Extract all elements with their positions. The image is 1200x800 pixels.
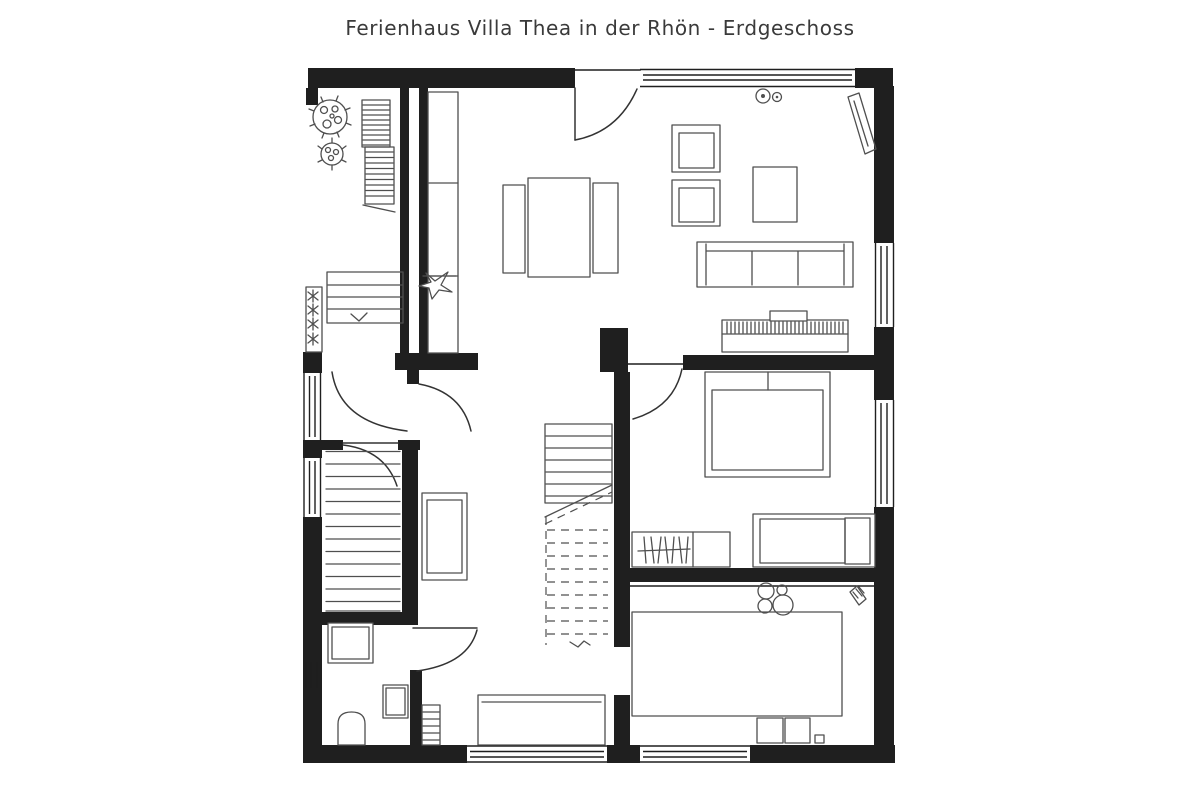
stool-1 — [757, 718, 783, 743]
window-left-stairroom — [304, 458, 321, 517]
wall-bathroom-east — [410, 670, 422, 745]
staircase-main — [545, 424, 612, 647]
window-bottom-kitchen — [640, 746, 750, 762]
stool-2 — [785, 718, 810, 743]
wall-pillar-piano — [600, 328, 628, 372]
single-bed — [753, 514, 875, 567]
hall-cupboard — [428, 92, 458, 353]
wall-top-right-corner — [855, 68, 893, 88]
kitchen-furniture — [632, 583, 866, 743]
sofa — [697, 242, 853, 287]
wall-right-upper — [874, 86, 894, 243]
bathroom-door — [413, 628, 477, 671]
window-bottom-hall — [467, 746, 607, 762]
dining-bench-right — [593, 183, 618, 273]
sink — [383, 685, 408, 718]
window-right-bedroom — [876, 400, 894, 507]
wall-bottom-right — [750, 745, 895, 763]
window-top-living — [640, 70, 855, 87]
plant-small-icon — [318, 138, 346, 170]
window-left-vestibule — [304, 373, 321, 440]
wall-bottom-mid — [607, 745, 640, 763]
wall-porch-inner — [419, 88, 428, 353]
vestibule-door-left — [332, 372, 407, 431]
cooktop — [758, 583, 793, 615]
tv-wall-mounted — [848, 93, 876, 154]
wall-stairroom-east — [402, 450, 418, 625]
wall-bedroom-top — [683, 355, 875, 370]
side-table — [753, 167, 797, 222]
wall-right-lower — [874, 507, 894, 763]
exterior-elements — [306, 96, 456, 352]
wall-kitchen-top — [628, 568, 877, 582]
bedroom-furniture — [632, 372, 875, 567]
entrance-door-top — [575, 88, 637, 140]
wall-left-pier1 — [303, 352, 322, 373]
hall-sideboard — [422, 493, 467, 580]
bedroom-door — [633, 369, 682, 419]
wall-stairroom-top-left — [322, 440, 343, 450]
wall-vestibule-top — [395, 353, 478, 370]
staircase-side — [326, 452, 400, 612]
flowerbed-hatch — [306, 287, 322, 352]
small-object — [815, 735, 824, 743]
wall-left-lower — [303, 517, 322, 763]
living-room-furniture — [419, 89, 876, 353]
dining-set — [503, 178, 618, 277]
ceiling-lamp-icon — [756, 89, 782, 103]
exterior-stairs — [362, 100, 395, 212]
wall-stairroom-top-right — [398, 440, 420, 450]
cutting-board — [850, 586, 866, 605]
wall-hall-east-lower — [614, 695, 630, 745]
floor-plan-svg — [0, 0, 1200, 800]
double-bed — [705, 372, 830, 477]
wardrobe — [632, 532, 730, 567]
window-right-living — [876, 243, 894, 327]
wall-topleft-stub — [306, 88, 318, 105]
radiator — [422, 705, 440, 745]
floor-plan-page: Ferienhaus Villa Thea in der Rhön - Erdg… — [0, 0, 1200, 800]
wall-porch-outer — [400, 88, 409, 353]
dining-bench-left — [503, 185, 525, 273]
wall-right-mid — [874, 327, 894, 400]
stair-end-mark — [570, 641, 590, 647]
toilet — [338, 712, 365, 745]
wall-bottom-left — [303, 745, 467, 763]
hall-bench-bottom — [478, 695, 605, 745]
hall-furniture — [422, 493, 605, 745]
piano-music-rest — [770, 311, 807, 321]
wall-hall-east-upper — [614, 372, 630, 647]
kitchen-island — [632, 612, 842, 716]
wall-left-pier2 — [303, 440, 322, 458]
shower — [328, 623, 373, 663]
dining-table — [528, 178, 590, 277]
wall-top-left — [308, 68, 575, 88]
armchair-1 — [672, 125, 720, 172]
wall-door-stub — [407, 370, 419, 384]
piano — [722, 311, 848, 352]
armchair-2 — [672, 180, 720, 226]
vestibule-door-right — [419, 384, 471, 431]
step-arrow — [351, 313, 367, 321]
bathroom-fixtures — [328, 623, 440, 745]
